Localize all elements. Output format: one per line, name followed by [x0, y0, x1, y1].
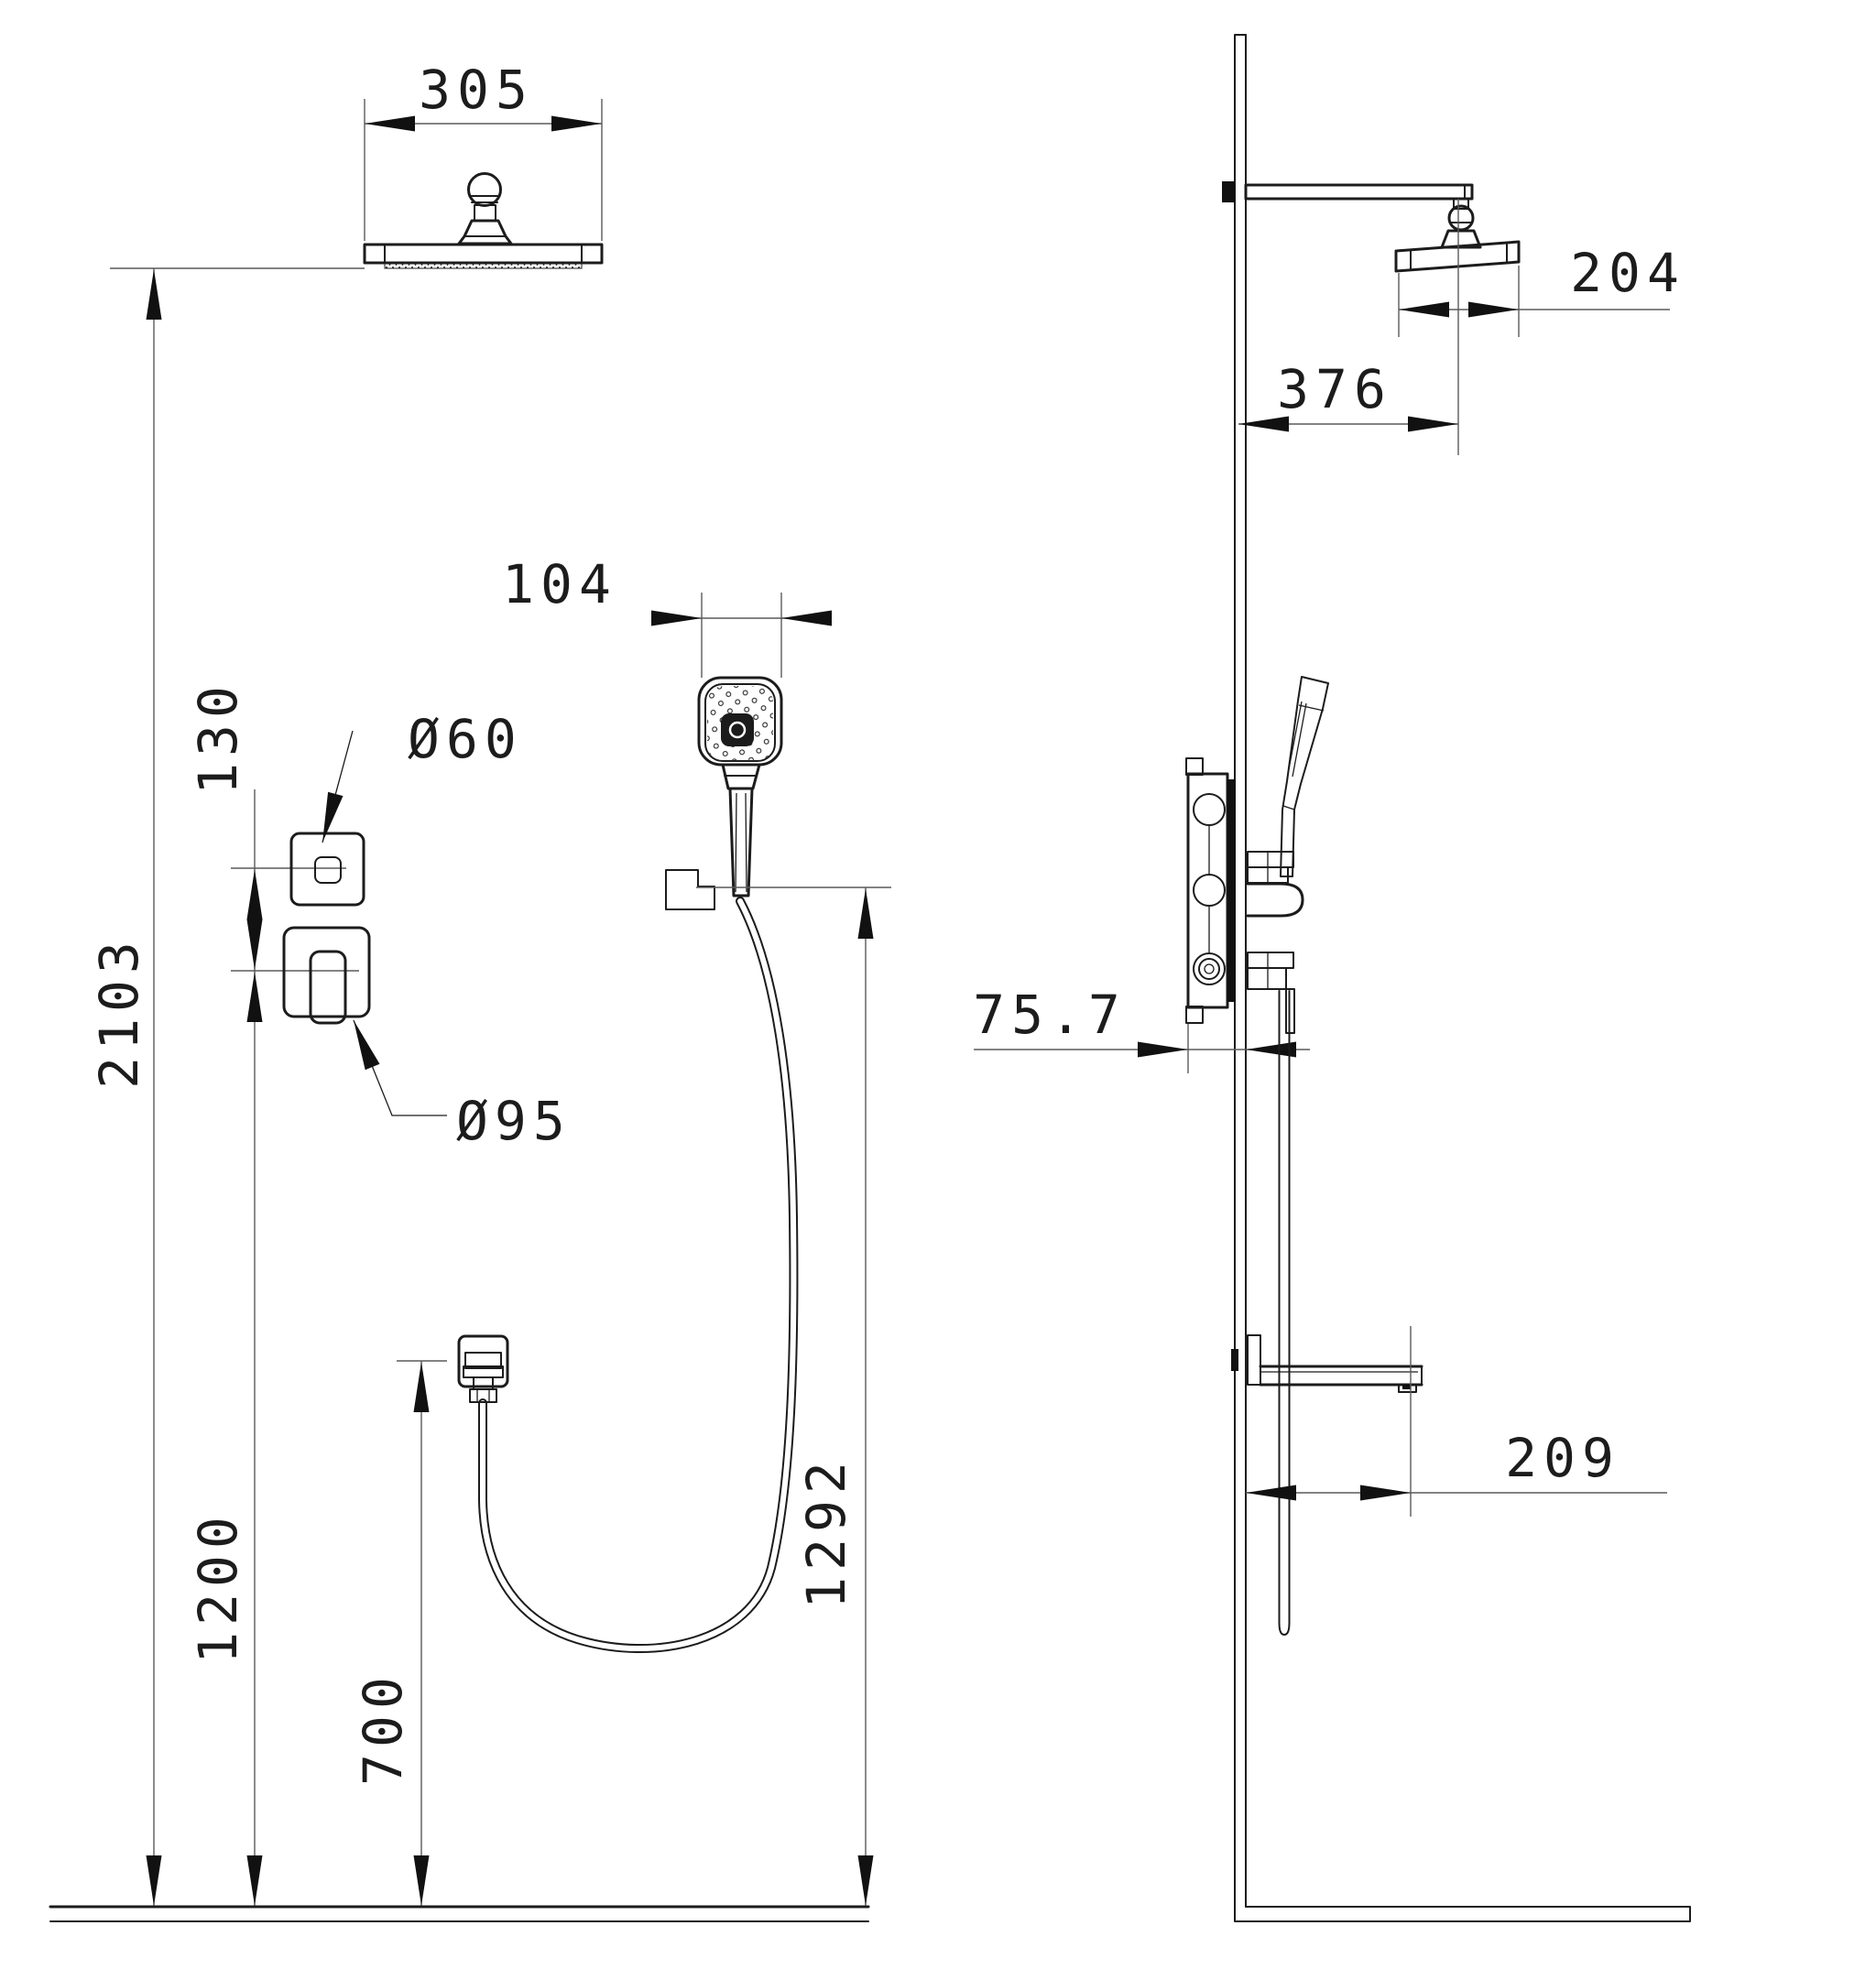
dim-label-700: 700: [352, 1670, 414, 1786]
arm-anchor-mark: [1222, 181, 1235, 202]
shelf-side: [1248, 1335, 1422, 1392]
valve-trim-side: [1248, 852, 1303, 1033]
dim-label-209: 209: [1505, 1427, 1620, 1489]
shower-hose-side: [1280, 991, 1290, 1635]
mixer-trim-plate: [284, 928, 369, 1023]
valve-body-side: [1186, 758, 1236, 1023]
wall-supply-outlet: [459, 1336, 507, 1402]
front-view: 305 2103 130 1200: [50, 59, 891, 1921]
wall-floor-side: [1235, 35, 1690, 1921]
dim-label-1292: 1292: [795, 1455, 857, 1609]
dim-mixer-height: 1200: [187, 972, 263, 1906]
technical-drawing-sheet: 305 2103 130 1200: [0, 0, 1876, 1969]
callout-diverter: Ø60: [322, 708, 523, 843]
floor-line-front: [50, 1907, 868, 1921]
diverter-trim-plate: [291, 833, 364, 905]
dim-outlet-height: 700: [352, 1361, 447, 1907]
dim-head-width: 305: [365, 59, 602, 241]
dim-trim-spacing: 130: [187, 680, 359, 1907]
hand-shower-side: [1281, 677, 1328, 876]
dim-label-104: 104: [502, 553, 617, 615]
dim-label-376: 376: [1277, 358, 1392, 420]
handshower-holder-front: [666, 870, 714, 909]
dim-overall-height: 2103: [88, 268, 162, 1907]
dim-label-2103: 2103: [88, 935, 150, 1089]
shower-system-drawing: 305 2103 130 1200: [0, 0, 1876, 1969]
dim-label-75-7: 75.7: [973, 984, 1127, 1046]
dim-label-305: 305: [419, 59, 534, 121]
side-view: 204 376: [973, 35, 1690, 1921]
dim-valve-depth: 75.7: [973, 984, 1310, 1073]
dim-head-offset: 376: [1238, 358, 1458, 432]
shelf-anchor-mark: [1231, 1349, 1238, 1371]
rain-shower-head-front: [365, 174, 602, 269]
dim-label-204: 204: [1570, 242, 1685, 304]
dim-label-d60: Ø60: [408, 708, 523, 770]
dim-shelf-reach: 209: [1246, 1326, 1667, 1517]
shower-hose-front: [483, 901, 793, 1648]
dim-label-1200: 1200: [187, 1510, 249, 1664]
dim-label-130: 130: [187, 680, 249, 795]
dim-label-d95: Ø95: [456, 1090, 572, 1152]
rain-shower-head-side: [1246, 185, 1519, 271]
callout-mixer: Ø95: [354, 1020, 572, 1152]
dim-handshower-width: 104: [502, 553, 832, 678]
hand-shower-front: [699, 678, 781, 896]
dim-head-depth: 204: [1399, 242, 1685, 337]
